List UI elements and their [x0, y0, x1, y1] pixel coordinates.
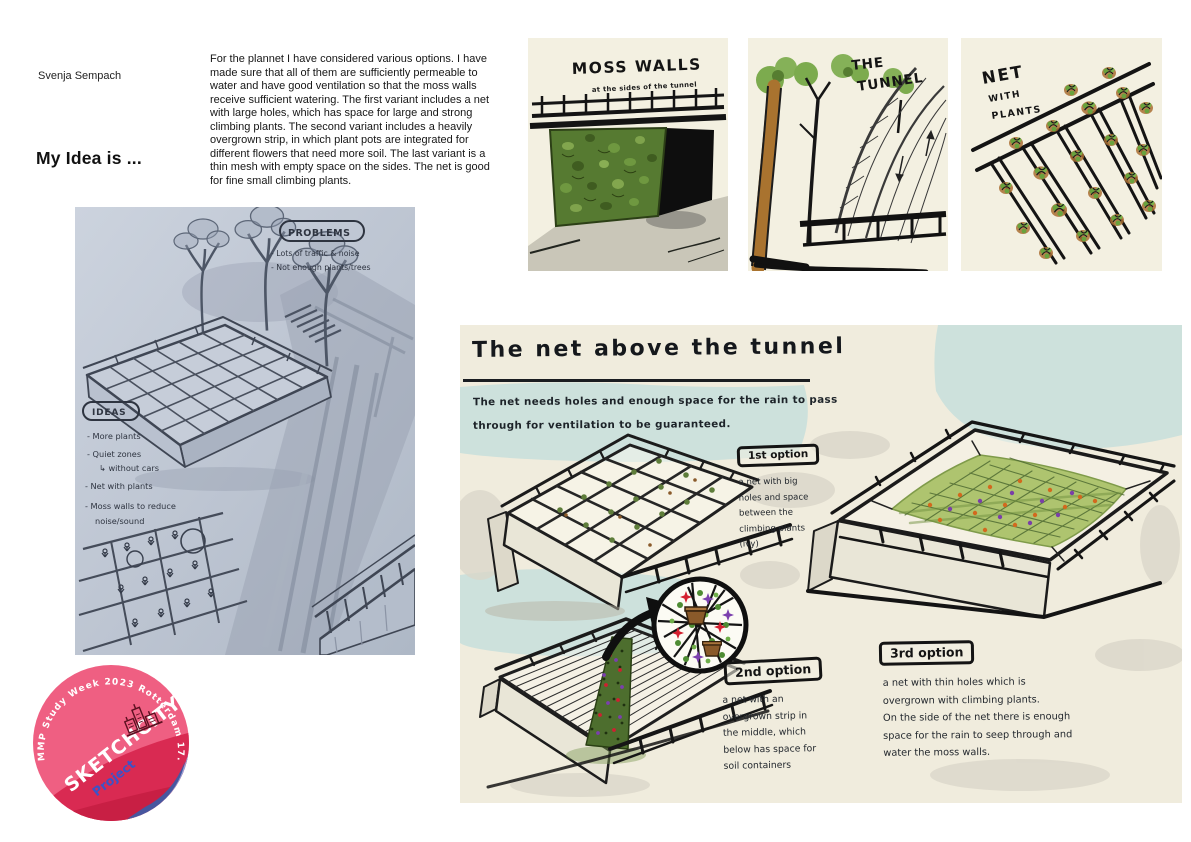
ideas-item-2: - Quiet zones: [87, 449, 141, 459]
net-title-1: NET: [980, 62, 1025, 88]
author-name: Svenja Sempach: [38, 70, 121, 82]
option-3-line-5: water the moss walls.: [883, 743, 1072, 762]
panel-moss-walls: MOSS WALLS at the sides of the tunnel: [528, 38, 728, 271]
the-tunnel-artwork: THE TUNNEL: [748, 38, 948, 271]
option-2-line-2: overgrown strip in: [723, 708, 816, 726]
page-root: Svenja Sempach My Idea is ... For the pl…: [0, 0, 1191, 842]
problems-item-2: - Not enough plants/trees: [271, 263, 371, 272]
tunnel-title-1: THE: [851, 55, 885, 74]
option-1-text: a net with big holes and space between t…: [738, 474, 809, 553]
net-with-plants-artwork: NET WITH PLANTS: [961, 38, 1162, 271]
page-heading: My Idea is ...: [36, 148, 142, 169]
panel-net-with-plants: NET WITH PLANTS: [961, 38, 1162, 271]
moss-walls-title: MOSS WALLS: [572, 55, 703, 78]
main-title-underline: [463, 379, 810, 382]
option-2-label: 2nd option: [723, 656, 822, 685]
option-1-line-4: climbing plants: [739, 521, 809, 538]
plant-pot-inset: [654, 579, 746, 671]
option-3-line-3: On the side of the net there is enough: [883, 708, 1072, 727]
ideas-item-3: ↳ without cars: [99, 463, 159, 473]
pencil-sketch-artwork: PROBLEMS - Lots of traffic & noise - Not…: [75, 207, 415, 655]
option-1-label: 1st option: [737, 444, 820, 468]
option-2-text: a net with an overgrown strip in the mid…: [722, 691, 816, 775]
panel-the-tunnel: THE TUNNEL: [748, 38, 948, 271]
option-1-line-5: (ivy): [739, 536, 809, 553]
moss-walls-subtitle: at the sides of the tunnel: [592, 81, 697, 94]
option-3-text: a net with thin holes which is overgrown…: [883, 673, 1073, 762]
moss-walls-artwork: MOSS WALLS at the sides of the tunnel: [528, 38, 728, 271]
flow-arrows: [896, 131, 934, 181]
main-title: The net above the tunnel: [472, 334, 846, 363]
main-panel: The net above the tunnel The net needs h…: [460, 325, 1182, 803]
intro-paragraph: For the plannet I have considered variou…: [210, 53, 502, 188]
ideas-item-4: - Net with plants: [85, 481, 153, 491]
option-1-line-2: holes and space: [739, 490, 809, 507]
option-3-line-2: overgrown with climbing plants.: [883, 691, 1072, 710]
option-2-line-5: soil containers: [723, 757, 816, 775]
option-3-line-1: a net with thin holes which is: [883, 673, 1072, 692]
bridge-railing: [530, 88, 726, 126]
sketchcity-sticker: MMP Study Week 2023 Rotterdam 17.4.-21.4…: [30, 662, 192, 824]
option-1-line-3: between the: [739, 505, 809, 522]
problems-item-1: - Lots of traffic & noise: [271, 249, 360, 258]
option-2-line-3: the middle, which: [723, 724, 816, 742]
option-1-line-1: a net with big: [738, 474, 808, 491]
option-2-line-1: a net with an: [722, 691, 815, 709]
ideas-item-5: - Moss walls to reduce: [85, 501, 176, 511]
ideas-title: IDEAS: [92, 408, 126, 418]
option-2-line-4: below has space for: [723, 741, 816, 759]
ideas-item-6: noise/sound: [95, 516, 144, 526]
ideas-item-1: - More plants: [87, 431, 141, 441]
main-subtitle-1: The net needs holes and enough space for…: [473, 394, 838, 409]
tree-trunk: [752, 86, 781, 270]
option-3-line-4: space for the rain to seep through and: [883, 726, 1072, 745]
option-3-label: 3rd option: [879, 640, 975, 666]
problems-title: PROBLEMS: [288, 228, 350, 239]
main-subtitle-2: through for ventilation to be guaranteed…: [473, 418, 731, 432]
pencil-sketch-photo: PROBLEMS - Lots of traffic & noise - Not…: [75, 207, 415, 655]
sticker-artwork: MMP Study Week 2023 Rotterdam 17.4.-21.4…: [30, 662, 192, 824]
net-title-2: WITH: [988, 89, 1022, 105]
moss-wall: [550, 128, 666, 226]
